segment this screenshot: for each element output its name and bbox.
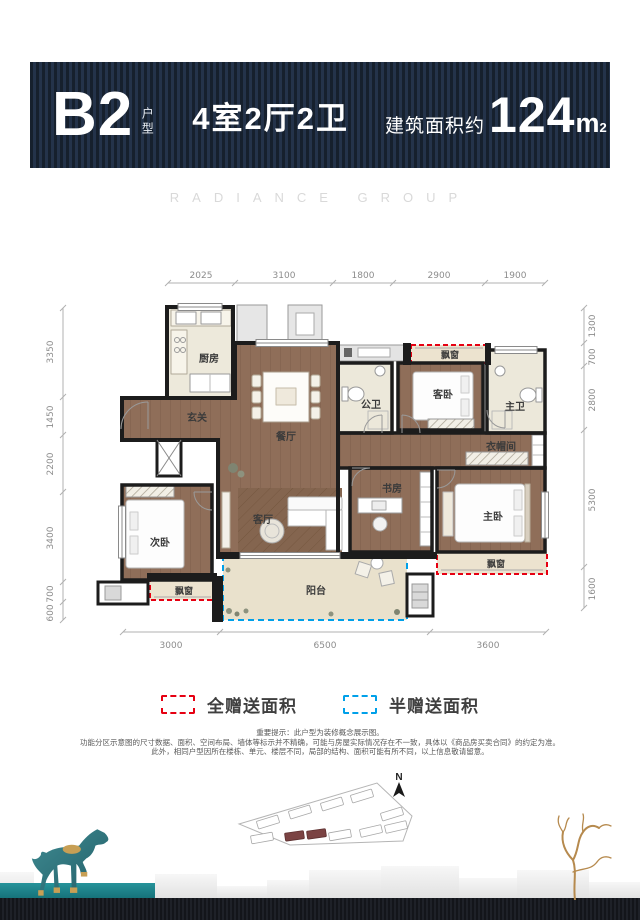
dim-top: 2025 <box>190 271 213 281</box>
tv-cabinet <box>222 492 230 548</box>
dim-right: 1300 <box>588 314 598 337</box>
pillow <box>461 376 469 393</box>
skyline-block <box>155 874 217 899</box>
floorplan-poster: B2 户型 4室2厅2卫 建筑面积约 124 m 2 RADIANCE GROU… <box>0 0 640 920</box>
lounge-cushion <box>379 571 394 586</box>
cloak-wardrobe <box>466 452 528 465</box>
second-wardrobe <box>126 486 174 497</box>
kitchen-sink <box>201 312 221 324</box>
full-gift-swatch <box>161 695 195 714</box>
plan-code: B2 <box>52 87 133 143</box>
branch-decoration <box>535 812 615 900</box>
plant <box>238 471 245 478</box>
pillow <box>130 512 138 530</box>
toilet <box>348 387 364 401</box>
dim-bottom: 6500 <box>314 641 337 651</box>
pillow <box>514 490 522 510</box>
bookshelf <box>420 472 431 546</box>
toilet <box>520 388 536 402</box>
disclaimer-line3: 此外，相同户型因所在楼栋、单元、楼层不同，局部的结构、面积可能有所不同，以上信息… <box>20 747 620 757</box>
horse-saddle <box>63 845 81 854</box>
equipment-window <box>358 348 390 357</box>
headboard <box>525 484 530 542</box>
label-guest-bedroom: 客卧 <box>432 388 453 401</box>
toilet-tank <box>536 388 542 402</box>
ac-unit <box>412 584 428 608</box>
north-arrow-icon <box>393 782 405 797</box>
horse-hoof <box>38 890 43 895</box>
dim-right: 700 <box>588 348 598 365</box>
guest-wardrobe <box>428 419 474 429</box>
dim-top: 1800 <box>352 271 375 281</box>
label-bay-window-second: 飘窗 <box>175 585 193 596</box>
sofa-back <box>288 497 342 510</box>
dim-bottom: 3000 <box>160 641 183 651</box>
dim-bottom: 3600 <box>477 641 500 651</box>
area-unit: m <box>575 108 599 139</box>
pillow <box>461 399 469 416</box>
plan-type-label: 户型 <box>139 107 156 137</box>
label-dining: 餐厅 <box>275 430 296 443</box>
half-gift-swatch <box>343 695 377 714</box>
pillow <box>130 536 138 554</box>
label-bay-window-master: 飘窗 <box>487 558 505 569</box>
gift-area-legend: 全赠送面积 半赠送面积 <box>0 692 640 717</box>
skyline-block <box>459 878 517 899</box>
north-label: N <box>395 772 402 783</box>
label-kitchen: 厨房 <box>199 352 219 365</box>
dim-left: 700 <box>46 585 56 602</box>
dim-left: 2200 <box>46 452 56 475</box>
kitchen-sink <box>176 312 196 324</box>
bed-bench <box>443 492 453 536</box>
second-bed <box>126 500 184 568</box>
label-public-bath: 公卫 <box>361 399 381 411</box>
label-master-bedroom: 主卧 <box>483 510 503 523</box>
label-entry: 玄关 <box>187 411 207 424</box>
area-prefix: 建筑面积约 <box>385 111 485 138</box>
dim-left: 3350 <box>46 340 56 363</box>
dining-centerpiece <box>276 388 296 405</box>
horse-hoof <box>81 872 87 877</box>
label-bay-window-top: 飘窗 <box>441 349 459 360</box>
horse-sculpture <box>30 824 130 900</box>
full-gift-label: 全赠送面积 <box>207 692 297 717</box>
floorplan-drawing: 厨房 玄关 餐厅 公卫 客卧 飘窗 主卫 衣帽间 书房 主卧 客厅 次卧 飘窗 … <box>38 262 610 658</box>
half-gift-label: 半赠送面积 <box>389 692 479 717</box>
area-value: 124 <box>489 86 575 144</box>
skyline-block <box>309 870 381 899</box>
bath-sink <box>495 366 505 376</box>
dim-top: 3100 <box>273 271 296 281</box>
disclaimer-line2: 功能分区示意图的尺寸数据、面积、空间布局、墙体等标示并不精确，可能与房屋实际情况… <box>20 738 620 748</box>
cloak-cabinet <box>532 435 544 466</box>
dim-left: 1450 <box>46 405 56 428</box>
toilet-tank <box>342 387 348 401</box>
skyline-block <box>267 880 309 899</box>
equipment-unit <box>344 348 352 357</box>
site-plan: N <box>225 763 435 858</box>
horse-body <box>32 829 109 894</box>
plant <box>228 463 238 473</box>
label-master-bath: 主卫 <box>505 400 525 413</box>
laptop <box>372 501 386 510</box>
dim-left: 3400 <box>46 526 56 549</box>
dim-left: 600 <box>46 604 56 621</box>
header-banner: B2 户型 4室2厅2卫 建筑面积约 124 m 2 <box>30 62 610 168</box>
pillow <box>514 516 522 536</box>
label-living: 客厅 <box>252 513 273 526</box>
horse-hoof <box>70 887 77 892</box>
dim-top: 2900 <box>428 271 451 281</box>
area-superscript: 2 <box>599 120 606 135</box>
label-second-bedroom: 次卧 <box>150 536 170 549</box>
label-balcony: 阳台 <box>306 584 326 597</box>
bath-sink <box>375 366 385 376</box>
duct-window <box>296 313 314 335</box>
disclaimer-line1: 重要提示：此户型为装修概念展示图。 <box>20 728 620 738</box>
horse-hoof <box>54 887 60 892</box>
plan-code-group: B2 户型 <box>52 87 156 143</box>
legend-half-gift: 半赠送面积 <box>343 692 479 717</box>
label-study: 书房 <box>382 482 402 495</box>
shaft-details <box>157 440 181 476</box>
dark-footer-strip <box>0 898 640 920</box>
brand-watermark: RADIANCE GROUP <box>0 190 640 205</box>
dim-right: 5300 <box>588 488 598 511</box>
rooms-summary: 4室2厅2卫 <box>192 93 349 138</box>
washer <box>105 586 121 600</box>
dim-right: 2800 <box>588 388 598 411</box>
duct-box <box>237 305 267 343</box>
area-group: 建筑面积约 124 m 2 <box>385 86 607 144</box>
legend-full-gift: 全赠送面积 <box>161 692 297 717</box>
dim-right: 1600 <box>588 577 598 600</box>
dim-top: 1900 <box>504 271 527 281</box>
study-chair <box>373 517 387 531</box>
disclaimer: 重要提示：此户型为装修概念展示图。 功能分区示意图的尺寸数据、面积、空间布局、墙… <box>20 728 620 757</box>
label-cloakroom: 衣帽间 <box>486 440 516 453</box>
skyline-block <box>381 866 459 899</box>
